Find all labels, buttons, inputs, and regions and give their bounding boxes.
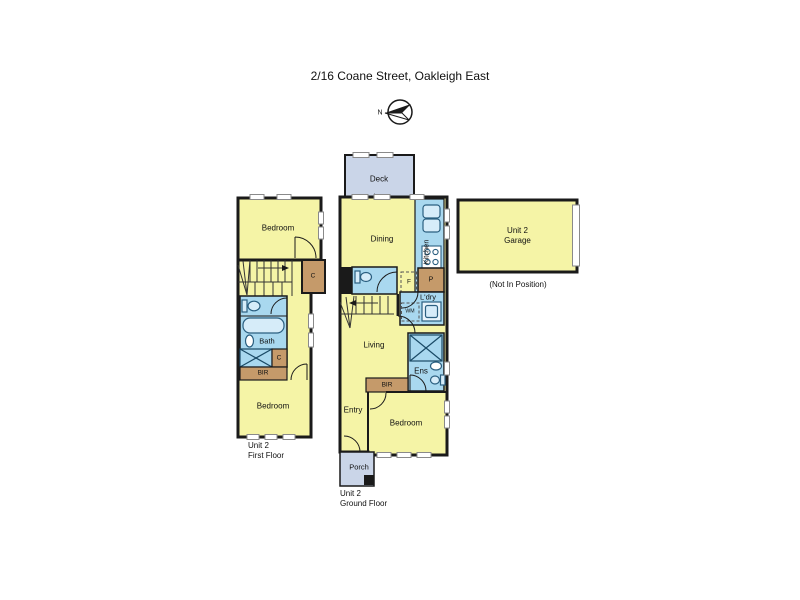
floorplan-drawing [0, 0, 800, 600]
bathtub-shape [243, 318, 284, 333]
floorplan-page: 2/16 Coane Street, Oakleigh East N Deck … [0, 0, 800, 600]
understair-storage [342, 267, 353, 294]
room-label-bedroom-top: Bedroom [262, 224, 294, 233]
room-label-bir-ground: BIR [382, 381, 393, 390]
room-label-closet: C [311, 272, 316, 281]
room-label-shower-closet: C [277, 354, 282, 363]
garage-note: (Not In Position) [448, 280, 588, 290]
room-label-pantry: P [429, 276, 434, 285]
toilet-shape [355, 271, 372, 283]
room-label-laundry: L'dry [420, 293, 436, 302]
room-label-dining: Dining [371, 235, 394, 244]
room-label-living: Living [364, 341, 385, 350]
room-label-bir-first: BIR [258, 369, 269, 378]
basin-shape [431, 362, 442, 370]
room-label-kitchen: Kitchen [422, 239, 431, 264]
basin-shape [246, 335, 254, 347]
kitchen-sink-shape [423, 205, 440, 232]
room-label-porch: Porch [349, 463, 369, 472]
ground-floor-plan [340, 153, 450, 487]
compass-north-label: N [377, 109, 382, 118]
ground-floor-caption: Unit 2 Ground Floor [340, 489, 387, 509]
room-label-ensuite: Ens [414, 367, 428, 376]
room-label-bath: Bath [259, 337, 274, 346]
first-floor-caption: Unit 2 First Floor [248, 441, 284, 461]
room-label-deck: Deck [370, 175, 388, 184]
shower-shape [240, 349, 272, 367]
room-label-wm: WM [405, 308, 414, 317]
porch-pier [364, 475, 374, 485]
room-label-entry: Entry [344, 406, 363, 415]
compass-icon [385, 100, 412, 124]
garage-caption: Unit 2 Garage [458, 226, 577, 246]
room-label-bedroom-ground: Bedroom [390, 419, 422, 428]
page-title: 2/16 Coane Street, Oakleigh East [0, 69, 800, 83]
room-label-fridge: F [407, 278, 411, 287]
room-label-bedroom-bottom: Bedroom [257, 402, 289, 411]
toilet-shape [431, 375, 446, 385]
toilet-shape [242, 300, 260, 312]
laundry-trough-shape [422, 302, 441, 321]
